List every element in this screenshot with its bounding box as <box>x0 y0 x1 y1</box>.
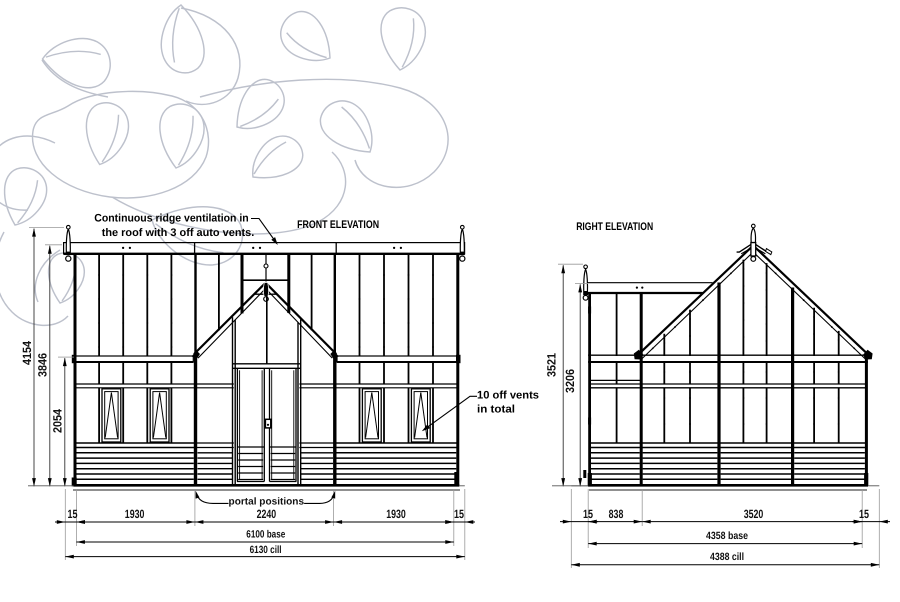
svg-text:3846: 3846 <box>36 353 50 377</box>
svg-text:4154: 4154 <box>20 341 34 365</box>
svg-text:15: 15 <box>68 507 78 521</box>
svg-text:10 off vents: 10 off vents <box>477 389 539 401</box>
svg-text:6100 base: 6100 base <box>246 528 285 540</box>
svg-text:15: 15 <box>859 507 869 521</box>
svg-text:15: 15 <box>454 507 464 521</box>
svg-text:1930: 1930 <box>125 507 145 521</box>
svg-text:3206: 3206 <box>563 369 577 393</box>
svg-text:in total: in total <box>477 403 515 415</box>
svg-text:2240: 2240 <box>257 507 277 521</box>
svg-text:4388 cill: 4388 cill <box>710 551 744 563</box>
svg-text:838: 838 <box>609 507 624 521</box>
svg-text:RIGHT ELEVATION: RIGHT ELEVATION <box>576 221 653 233</box>
svg-text:FRONT ELEVATION: FRONT ELEVATION <box>297 219 379 231</box>
svg-text:the roof with 3 off auto vents: the roof with 3 off auto vents. <box>102 227 255 239</box>
svg-text:3520: 3520 <box>744 507 764 521</box>
svg-text:4358 base: 4358 base <box>706 530 748 542</box>
svg-text:6130 cill: 6130 cill <box>250 544 282 556</box>
svg-text:3521: 3521 <box>545 353 559 377</box>
svg-text:1930: 1930 <box>386 507 406 521</box>
svg-text:15: 15 <box>583 507 593 521</box>
svg-text:2054: 2054 <box>51 409 65 433</box>
svg-text:portal positions: portal positions <box>229 496 305 507</box>
svg-text:Continuous ridge ventilation i: Continuous ridge ventilation in <box>94 212 249 224</box>
